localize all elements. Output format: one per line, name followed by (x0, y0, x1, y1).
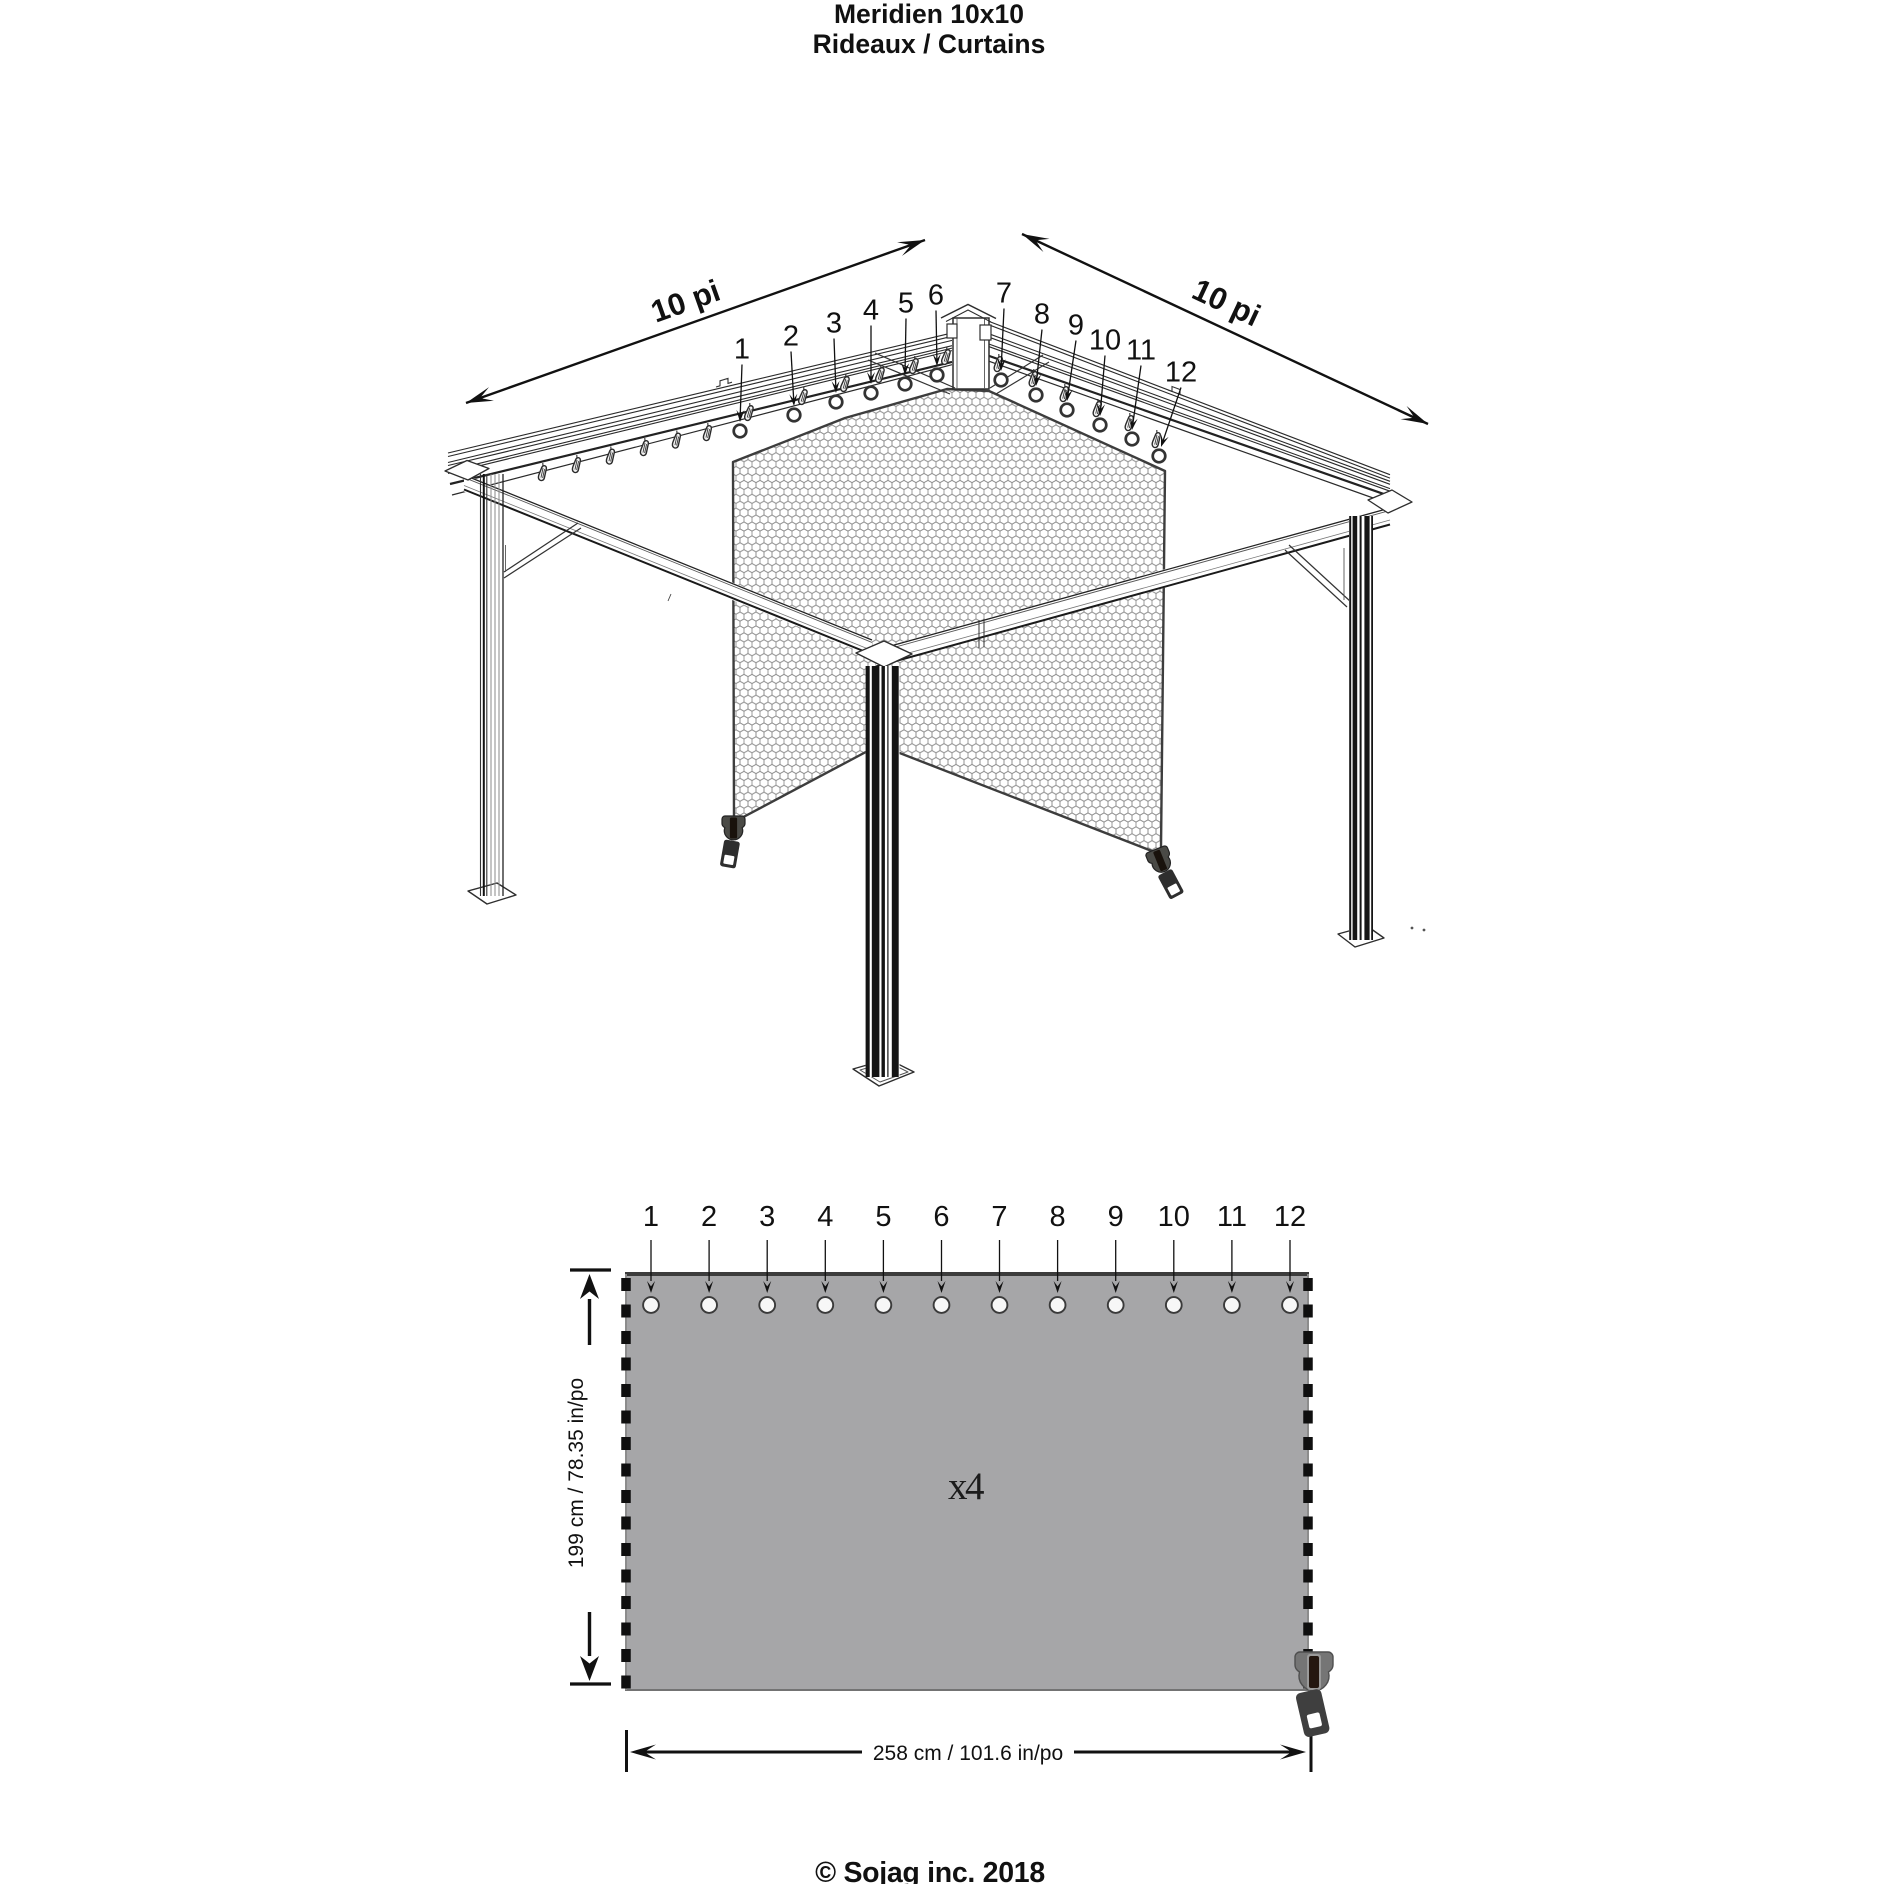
svg-text:258 cm / 101.6 in/po: 258 cm / 101.6 in/po (873, 1742, 1063, 1765)
svg-text:4: 4 (817, 1201, 833, 1233)
svg-text:1: 1 (734, 334, 750, 366)
svg-text:6: 6 (933, 1201, 949, 1233)
svg-text:8: 8 (1050, 1201, 1066, 1233)
svg-text:8: 8 (1034, 299, 1050, 331)
svg-text:© Sojag inc. 2018: © Sojag inc. 2018 (815, 1857, 1045, 1884)
svg-text:Meridien 10x10: Meridien 10x10 (834, 0, 1024, 29)
svg-text:4: 4 (863, 295, 879, 327)
svg-text:Rideaux / Curtains: Rideaux / Curtains (813, 29, 1046, 59)
svg-text:10: 10 (1158, 1201, 1190, 1233)
svg-text:5: 5 (898, 288, 914, 320)
svg-text:5: 5 (875, 1201, 891, 1233)
svg-text:11: 11 (1217, 1201, 1247, 1233)
svg-text:6: 6 (928, 280, 944, 312)
svg-text:12: 12 (1165, 357, 1197, 389)
svg-text:10: 10 (1089, 325, 1121, 357)
svg-text:7: 7 (991, 1201, 1007, 1233)
svg-text:10 pi: 10 pi (1187, 272, 1266, 334)
svg-text:11: 11 (1126, 335, 1156, 367)
svg-text:3: 3 (826, 308, 842, 340)
svg-text:7: 7 (996, 278, 1012, 310)
svg-text:12: 12 (1274, 1201, 1306, 1233)
svg-text:2: 2 (701, 1201, 717, 1233)
svg-text:9: 9 (1068, 310, 1084, 342)
svg-text:9: 9 (1108, 1201, 1124, 1233)
svg-text:3: 3 (759, 1201, 775, 1233)
svg-text:2: 2 (783, 321, 799, 353)
svg-text:199 cm / 78.35 in/po: 199 cm / 78.35 in/po (565, 1378, 588, 1568)
svg-text:10 pi: 10 pi (646, 273, 724, 330)
svg-text:x4: x4 (948, 1465, 984, 1508)
svg-text:1: 1 (643, 1201, 659, 1233)
